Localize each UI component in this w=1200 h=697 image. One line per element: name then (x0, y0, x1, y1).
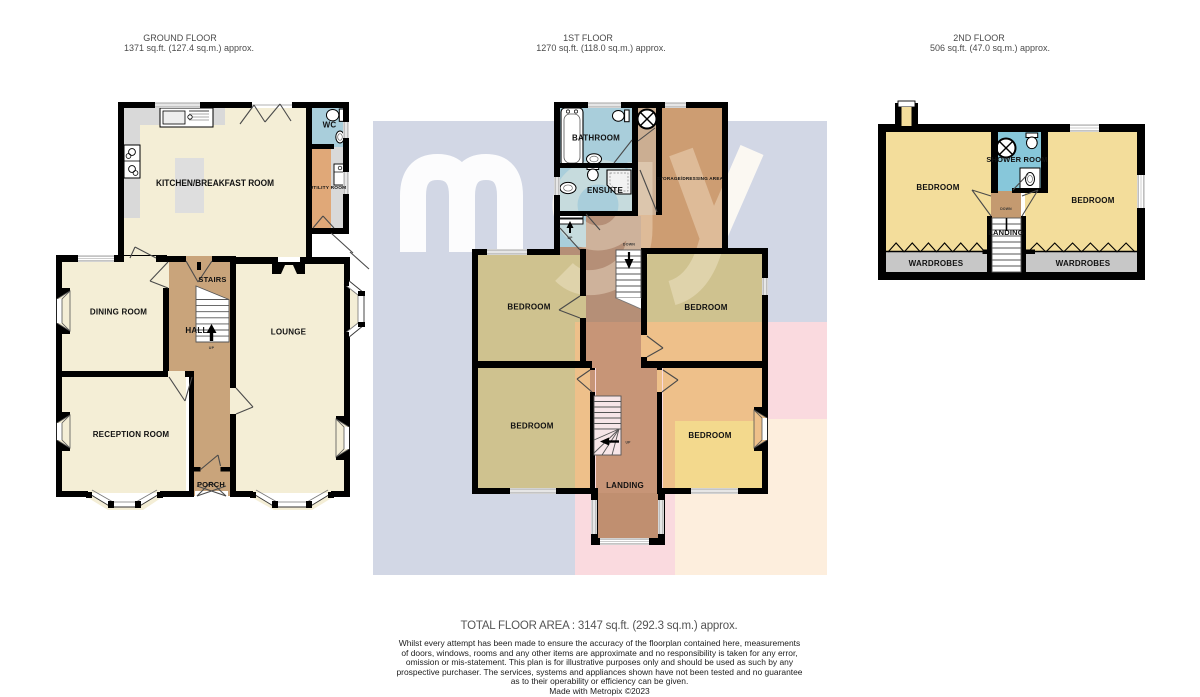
svg-text:BEDROOM: BEDROOM (916, 183, 959, 192)
svg-text:UP: UP (209, 346, 215, 350)
svg-text:LANDING: LANDING (606, 481, 644, 490)
svg-text:SHOWER ROOM: SHOWER ROOM (986, 155, 1047, 164)
svg-text:ENSUITE: ENSUITE (587, 186, 624, 195)
svg-text:BEDROOM: BEDROOM (688, 431, 731, 440)
svg-text:UP: UP (567, 236, 573, 240)
svg-text:BEDROOM: BEDROOM (1071, 196, 1114, 205)
svg-text:STAIRS: STAIRS (198, 275, 226, 284)
svg-text:KITCHEN/BREAKFAST ROOM: KITCHEN/BREAKFAST ROOM (156, 178, 274, 188)
svg-text:DINING ROOM: DINING ROOM (90, 308, 147, 317)
svg-text:LOUNGE: LOUNGE (271, 328, 307, 337)
svg-text:BATHROOM: BATHROOM (572, 134, 620, 143)
svg-text:HALL: HALL (185, 326, 207, 335)
svg-text:WC: WC (323, 121, 337, 130)
svg-text:LANDING: LANDING (988, 228, 1024, 237)
svg-text:RECEPTION ROOM: RECEPTION ROOM (93, 430, 170, 439)
svg-text:WARDROBES: WARDROBES (1056, 259, 1111, 268)
svg-text:UP: UP (625, 441, 631, 445)
svg-text:STORAGE/DRESSING AREA: STORAGE/DRESSING AREA (657, 176, 724, 181)
svg-text:BEDROOM: BEDROOM (510, 422, 553, 431)
svg-text:DOWN: DOWN (623, 243, 635, 247)
svg-text:BEDROOM: BEDROOM (507, 303, 550, 312)
svg-text:DOWN: DOWN (1000, 207, 1012, 211)
svg-text:WARDROBES: WARDROBES (909, 259, 964, 268)
svg-text:BEDROOM: BEDROOM (684, 303, 727, 312)
svg-text:UTILITY ROOM: UTILITY ROOM (310, 185, 347, 191)
svg-text:PORCH: PORCH (197, 480, 225, 489)
